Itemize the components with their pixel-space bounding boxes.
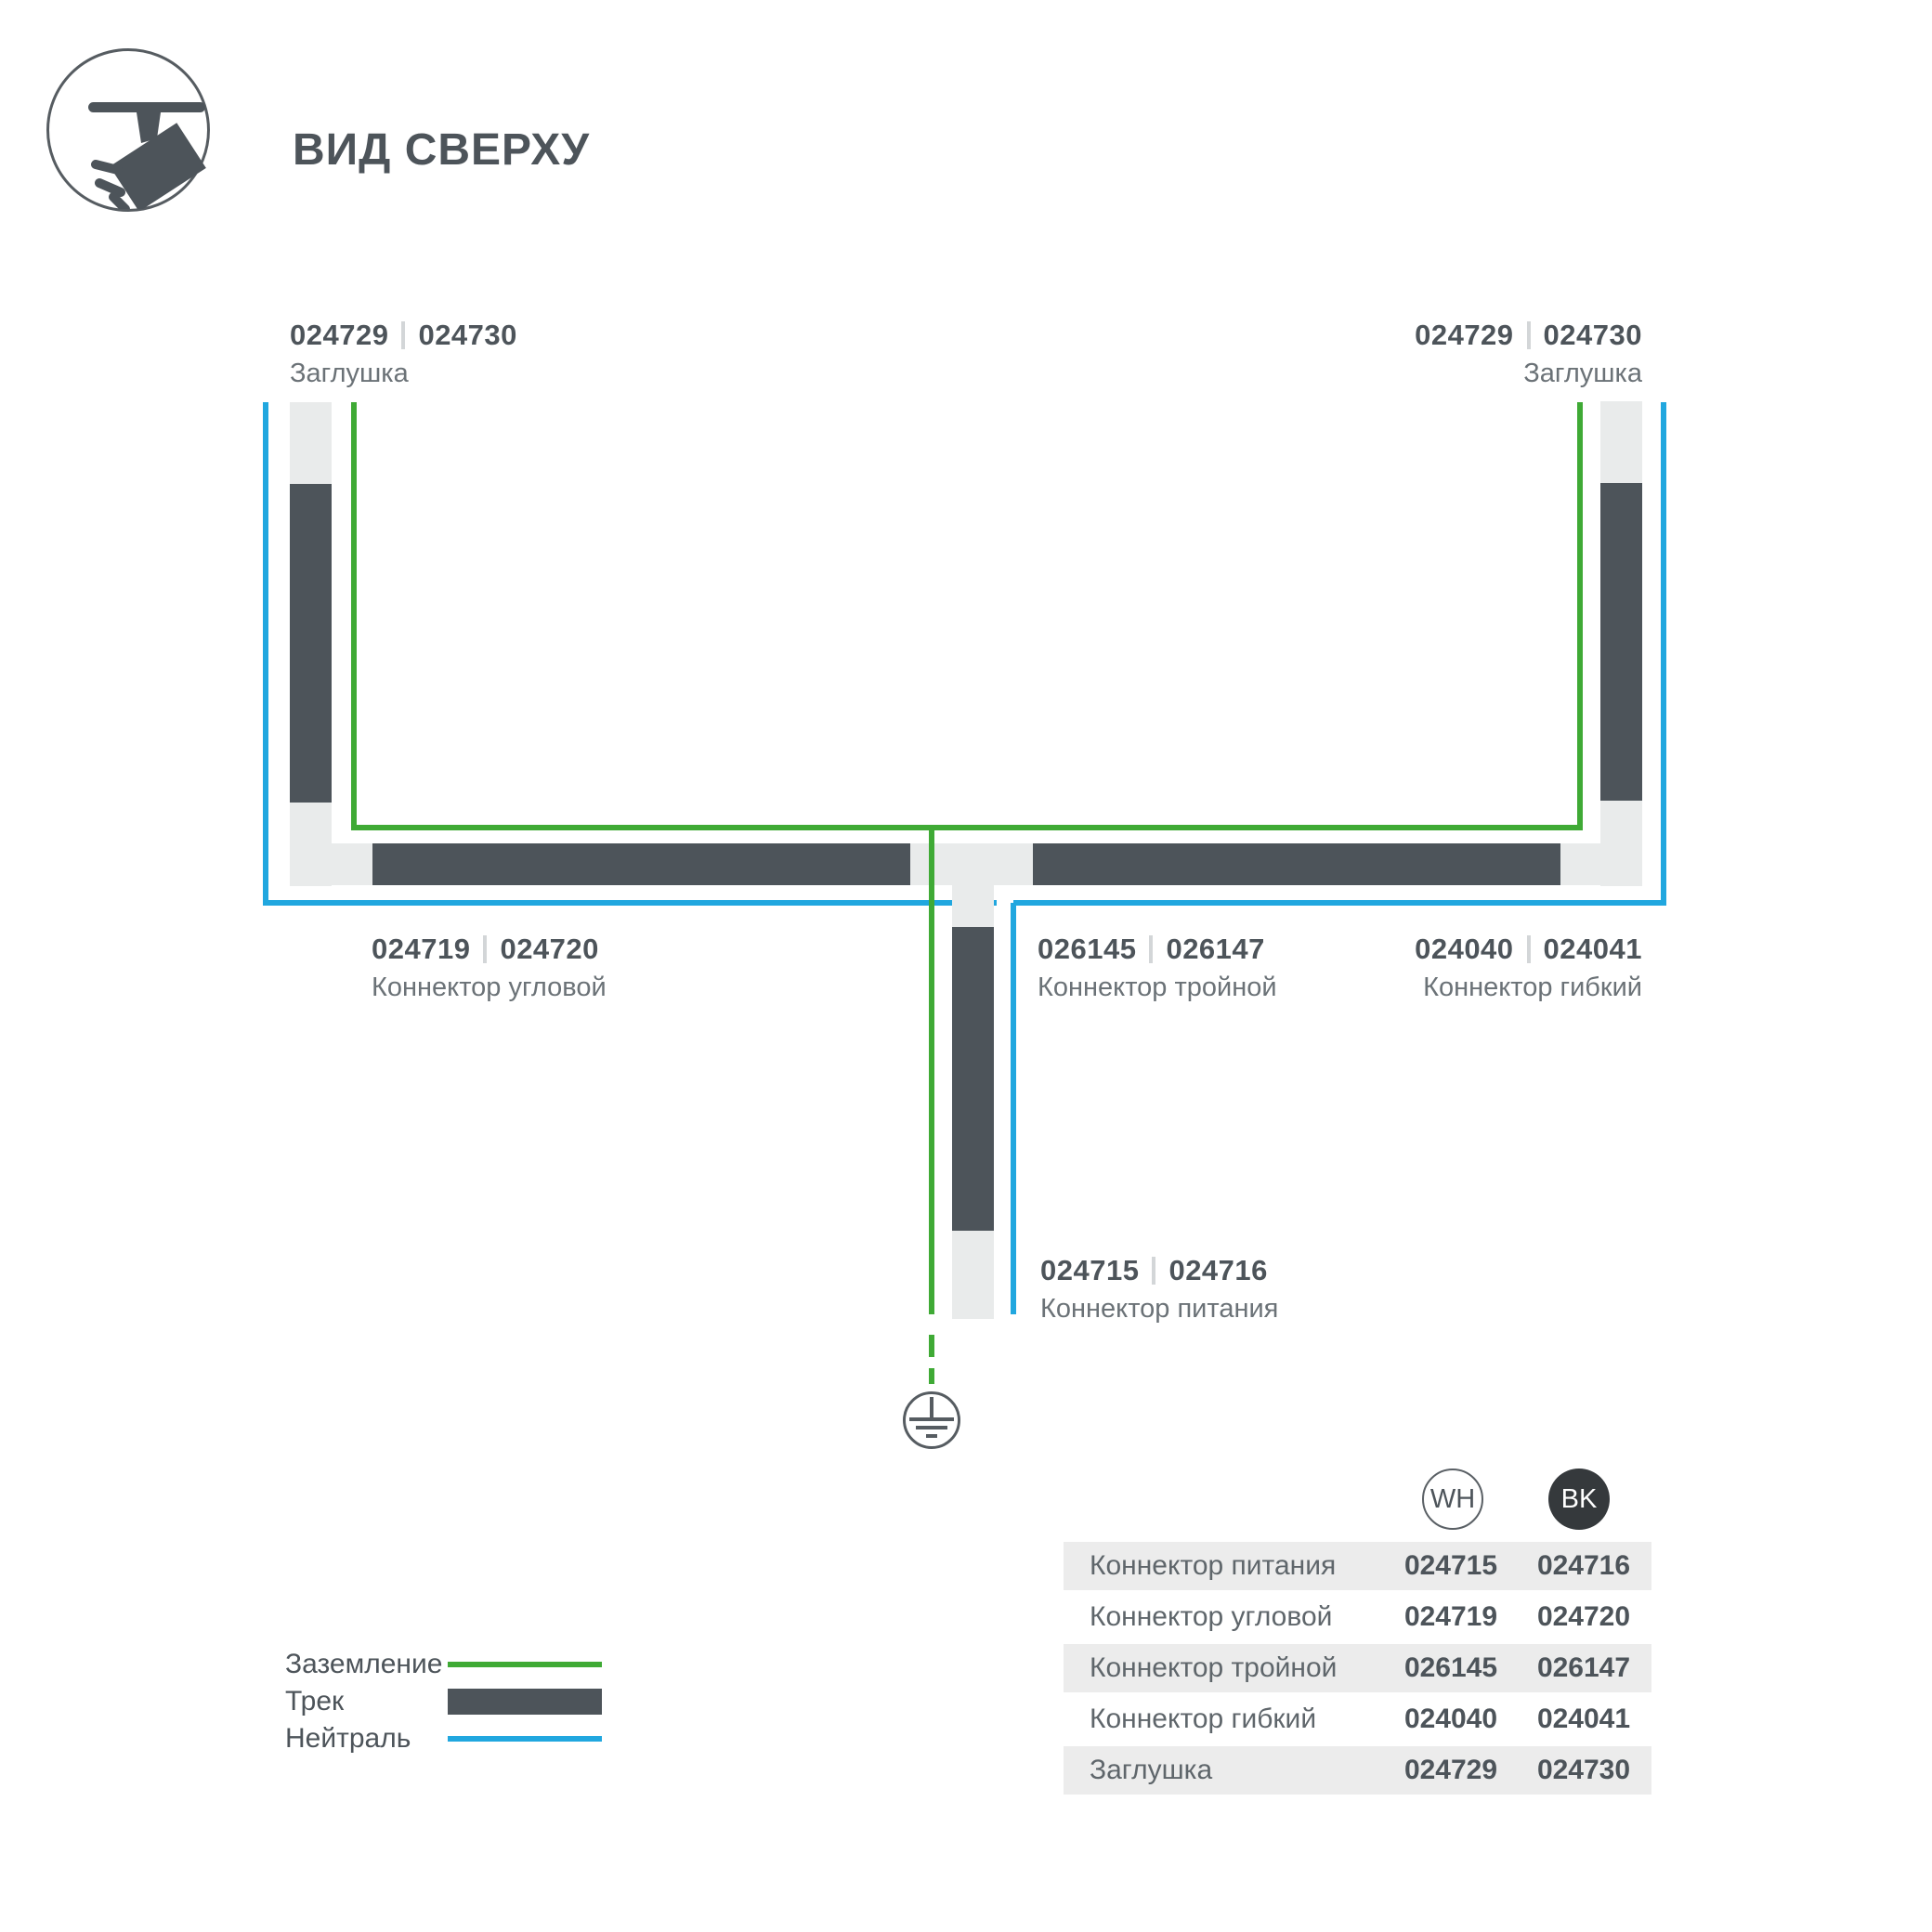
row-part-name: Заглушка xyxy=(1064,1755,1386,1786)
row-code-wh: 026145 xyxy=(1386,1652,1516,1684)
track-segment-left xyxy=(290,484,332,803)
table-row: Коннектор питания 024715 024716 xyxy=(1064,1542,1651,1590)
row-code-bk: 026147 xyxy=(1516,1652,1651,1684)
legend-item-neutral: Нейтраль xyxy=(285,1720,606,1757)
neutral-wire-left xyxy=(263,402,997,906)
track-light-icon xyxy=(46,48,210,212)
table-row: Заглушка 024729 024730 xyxy=(1064,1746,1651,1795)
code-divider xyxy=(483,935,487,963)
part-code-bk: 024716 xyxy=(1168,1254,1267,1287)
legend-label: Трек xyxy=(285,1686,448,1717)
row-part-name: Коннектор питания xyxy=(1064,1550,1386,1582)
row-code-bk: 024720 xyxy=(1516,1601,1651,1633)
parts-table-rows: Коннектор питания 024715 024716 Коннекто… xyxy=(1064,1542,1651,1797)
corner-connector-left xyxy=(290,803,332,886)
table-row: Коннектор угловой 024719 024720 xyxy=(1064,1593,1651,1641)
column-header-black: BK xyxy=(1548,1469,1610,1530)
code-divider xyxy=(401,321,405,349)
part-code-wh: 024729 xyxy=(1415,319,1513,352)
neutral-wire-right xyxy=(1013,402,1666,906)
legend-item-track: Трек xyxy=(285,1683,606,1720)
legend-item-ground: Заземление xyxy=(285,1646,606,1683)
part-code-wh: 024719 xyxy=(372,933,470,966)
row-code-bk: 024730 xyxy=(1516,1755,1651,1786)
part-code-wh: 024040 xyxy=(1415,933,1513,966)
corner-connector-right xyxy=(1600,801,1642,886)
code-divider xyxy=(1149,935,1153,963)
power-connector xyxy=(952,1231,994,1319)
row-code-wh: 024040 xyxy=(1386,1704,1516,1735)
part-name: Заглушка xyxy=(1415,359,1642,389)
label-corner-connector: 024719 024720 Коннектор угловой xyxy=(372,933,607,1003)
neutral-line-swatch xyxy=(448,1736,602,1742)
top-view-diagram-page: ВИД СВЕРХУ 024729 024730 Заглушка 024729 xyxy=(0,0,1932,1932)
part-name: Коннектор питания xyxy=(1040,1294,1278,1325)
end-cap-right xyxy=(1600,401,1642,483)
spotlight-glyph xyxy=(49,51,207,209)
code-divider xyxy=(1527,321,1531,349)
code-divider xyxy=(1527,935,1531,963)
row-code-wh: 024719 xyxy=(1386,1601,1516,1633)
part-code-bk: 024730 xyxy=(1544,319,1642,352)
row-code-wh: 024715 xyxy=(1386,1550,1516,1582)
label-flex-connector: 024040 024041 Коннектор гибкий xyxy=(1415,933,1642,1003)
page-title: ВИД СВЕРХУ xyxy=(293,124,590,176)
part-code-bk: 024041 xyxy=(1544,933,1642,966)
track-segment-right xyxy=(1600,483,1642,801)
row-code-bk: 024716 xyxy=(1516,1550,1651,1582)
track-bar-swatch xyxy=(448,1689,602,1715)
part-code-bk: 024730 xyxy=(418,319,516,352)
corner-connector-left xyxy=(332,843,372,885)
part-name: Коннектор тройной xyxy=(1038,973,1277,1003)
row-part-name: Коннектор угловой xyxy=(1064,1601,1386,1633)
ground-wire-drop xyxy=(929,829,934,1314)
end-cap-left xyxy=(290,402,332,484)
table-row: Коннектор гибкий 024040 024041 xyxy=(1064,1695,1651,1743)
part-code-wh: 024715 xyxy=(1040,1254,1139,1287)
code-divider xyxy=(1152,1257,1155,1285)
neutral-wire-drop xyxy=(1011,903,1016,1314)
ground-wire-dash xyxy=(929,1335,934,1357)
label-tee-connector: 026145 026147 Коннектор тройной xyxy=(1038,933,1277,1003)
part-name: Коннектор угловой xyxy=(372,973,607,1003)
legend-label: Заземление xyxy=(285,1649,448,1680)
part-name: Заглушка xyxy=(290,359,517,389)
row-code-wh: 024729 xyxy=(1386,1755,1516,1786)
row-part-name: Коннектор гибкий xyxy=(1064,1704,1386,1735)
part-code-wh: 024729 xyxy=(290,319,388,352)
part-code-bk: 024720 xyxy=(500,933,598,966)
track-segment-bottom-right xyxy=(1033,843,1560,885)
tee-connector xyxy=(952,885,994,928)
label-end-cap-left: 024729 024730 Заглушка xyxy=(290,319,517,389)
label-end-cap-right: 024729 024730 Заглушка xyxy=(1415,319,1642,389)
ground-line-swatch xyxy=(448,1662,602,1667)
legend-label: Нейтраль xyxy=(285,1723,448,1755)
earth-ground-icon xyxy=(909,1417,954,1421)
row-part-name: Коннектор тройной xyxy=(1064,1652,1386,1684)
track-segment-bottom-left xyxy=(372,843,910,885)
legend: Заземление Трек Нейтраль xyxy=(285,1646,606,1757)
corner-connector-right xyxy=(1560,843,1600,885)
track-segment-center xyxy=(952,927,994,1231)
earth-ground-icon xyxy=(930,1397,933,1419)
part-code-bk: 026147 xyxy=(1166,933,1264,966)
part-name: Коннектор гибкий xyxy=(1415,973,1642,1003)
earth-ground-icon xyxy=(916,1426,947,1429)
table-row: Коннектор тройной 026145 026147 xyxy=(1064,1644,1651,1692)
label-power-connector: 024715 024716 Коннектор питания xyxy=(1040,1254,1278,1325)
part-code-wh: 026145 xyxy=(1038,933,1136,966)
column-header-white: WH xyxy=(1422,1469,1483,1530)
ground-wire-dash xyxy=(929,1368,934,1384)
earth-ground-icon xyxy=(926,1434,937,1438)
row-code-bk: 024041 xyxy=(1516,1704,1651,1735)
